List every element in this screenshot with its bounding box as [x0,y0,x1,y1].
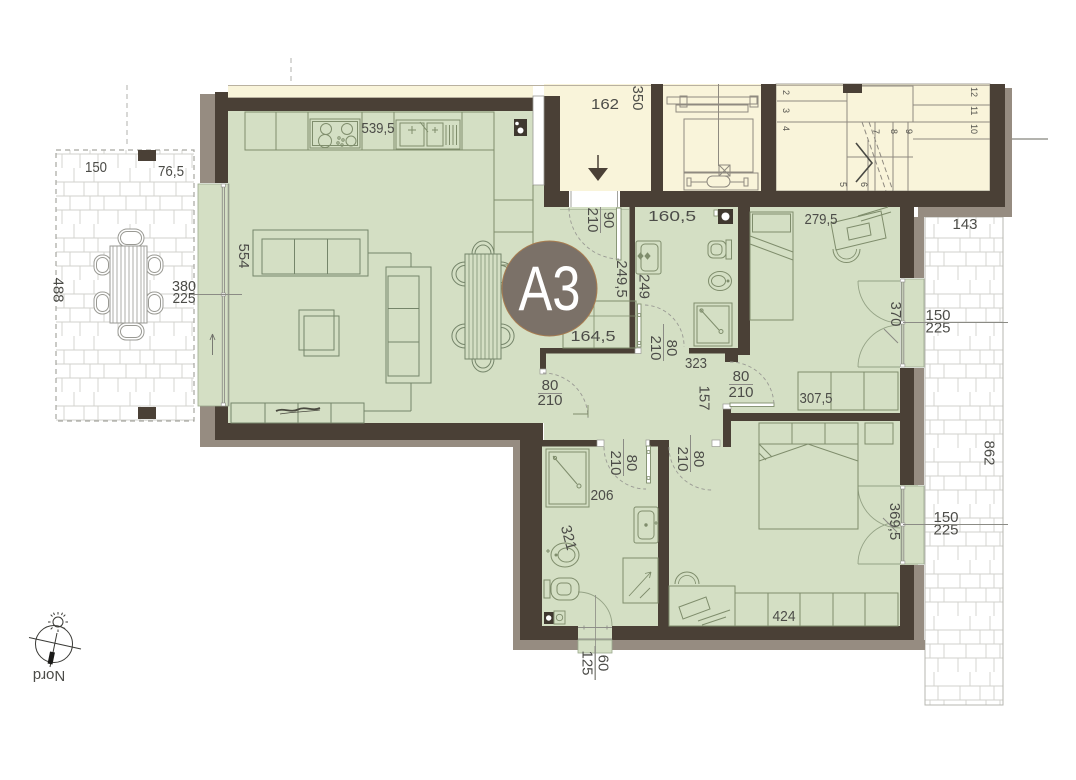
svg-text:350: 350 [629,85,646,110]
svg-text:307,5: 307,5 [800,390,833,407]
svg-text:5: 5 [838,182,848,187]
svg-text:3: 3 [781,108,791,113]
svg-text:80: 80 [623,455,640,472]
svg-text:4: 4 [781,126,791,131]
svg-text:125: 125 [579,650,596,675]
svg-text:160,5: 160,5 [648,208,696,225]
svg-text:80: 80 [663,340,680,357]
svg-text:9: 9 [904,129,914,134]
svg-text:210: 210 [607,450,624,475]
svg-text:210: 210 [728,384,753,401]
svg-text:554: 554 [235,243,252,268]
svg-text:249: 249 [636,274,653,299]
svg-text:210: 210 [647,335,664,360]
svg-text:162: 162 [591,96,619,113]
svg-text:279,5: 279,5 [805,211,838,228]
svg-text:369,5: 369,5 [886,503,903,541]
svg-text:2: 2 [781,90,791,95]
svg-text:60: 60 [595,655,612,672]
svg-text:90: 90 [600,212,617,229]
svg-text:862: 862 [981,440,998,465]
svg-text:12: 12 [969,87,979,97]
svg-text:370: 370 [887,301,904,326]
svg-text:210: 210 [584,207,601,232]
svg-text:10: 10 [969,124,979,134]
svg-text:150: 150 [85,159,107,176]
svg-text:6: 6 [859,182,869,187]
svg-text:7: 7 [871,129,881,134]
svg-text:424: 424 [773,608,796,625]
svg-text:488: 488 [50,277,67,302]
svg-text:A3: A3 [519,254,581,324]
svg-text:Nord: Nord [33,667,66,684]
svg-text:11: 11 [969,106,979,115]
svg-text:210: 210 [537,392,562,409]
svg-text:164,5: 164,5 [571,328,616,345]
svg-text:323: 323 [685,355,707,372]
svg-text:249,5: 249,5 [613,260,630,298]
svg-text:143: 143 [953,216,978,233]
svg-text:210: 210 [674,446,691,471]
svg-text:8: 8 [889,129,899,134]
svg-text:225: 225 [173,290,196,307]
svg-text:539,5: 539,5 [362,120,395,137]
svg-text:157: 157 [696,385,713,410]
svg-text:76,5: 76,5 [158,163,184,180]
svg-text:80: 80 [690,451,707,468]
svg-text:80: 80 [733,368,750,385]
svg-text:206: 206 [591,487,614,504]
